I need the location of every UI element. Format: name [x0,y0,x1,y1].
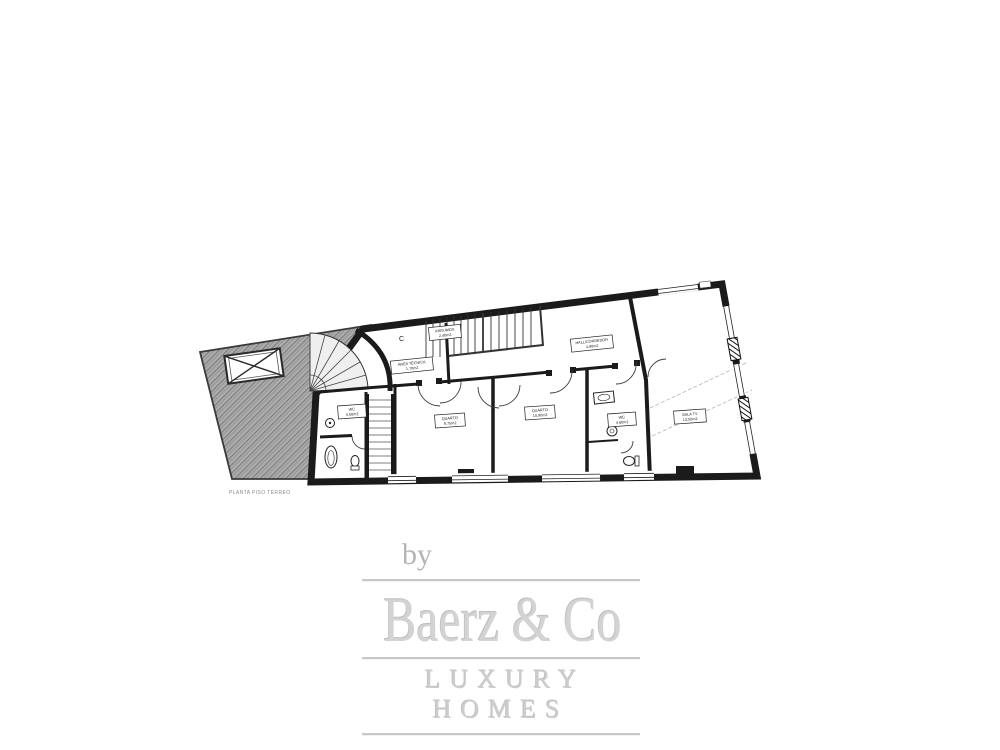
building-outline [311,284,757,482]
logo-divider-top [362,579,640,581]
svg-text:WC: WC [619,415,626,419]
logo-brand-text: Baerz & Co [383,583,619,657]
room-label-sala: SALA TV 13,50m2 [674,409,707,424]
logo-divider-middle [362,657,640,659]
room-label-quarto2: QUARTO 10,90m2 [525,405,556,420]
toilet-icon [624,457,635,466]
room-label-quarto1: QUARTO 9,75m2 [435,413,466,428]
letter-c: C [399,336,404,343]
logo-tagline-text: LUXURY HOMES [350,665,652,725]
svg-text:WC: WC [349,407,356,411]
toilet-icon [351,456,359,467]
watermark-logo: by Baerz & Co LUXURY HOMES [350,540,652,735]
room-label-wc-mid: WC 4,60m2 [608,412,637,427]
logo-divider-bottom [362,733,640,735]
room-label-wc-left: WC 4,50m2 [338,404,367,419]
logo-by-text: by [350,540,652,570]
plan-caption: PLANTA PISO TÉRREO [229,489,290,496]
